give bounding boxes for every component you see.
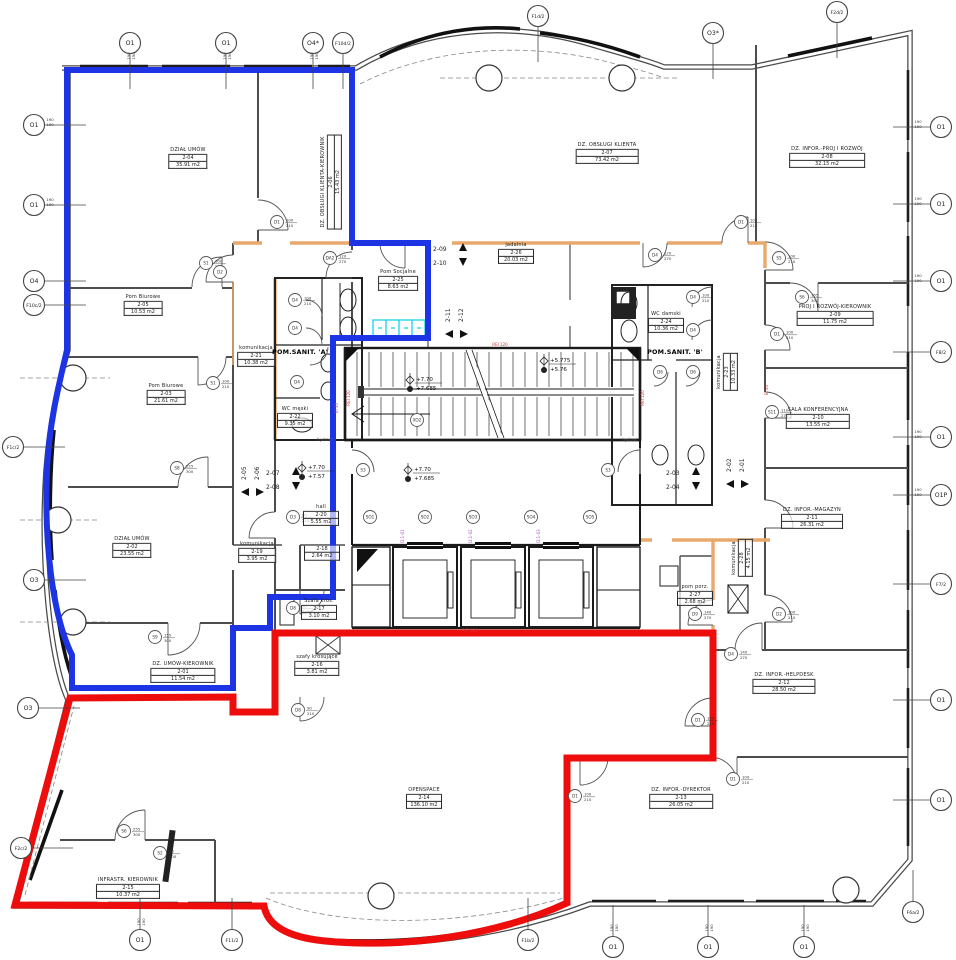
door-tag: D6: [654, 366, 667, 379]
door-tag: SO1: [364, 511, 377, 524]
svg-text:90: 90: [302, 513, 307, 518]
svg-text:190: 190: [614, 924, 619, 932]
svg-text:D2: D2: [217, 270, 223, 275]
svg-text:XO2: XO2: [413, 418, 422, 423]
grid-marker: O1: [216, 33, 237, 90]
window-dimension: 190190: [46, 117, 54, 127]
svg-text:+7.685: +7.685: [416, 386, 437, 392]
grid-marker: O3*: [703, 23, 724, 80]
svg-text:O1: O1: [126, 40, 135, 47]
misc-annotation: REI 120: [462, 628, 478, 633]
svg-text:D1: D1: [695, 718, 701, 723]
grid-marker: O4*: [303, 33, 324, 90]
direction-marker: 2-072-08: [266, 467, 300, 491]
svg-text:S3: S3: [360, 468, 366, 473]
svg-text:100: 100: [742, 775, 750, 780]
grid-marker: O1: [893, 690, 952, 711]
svg-text:S1: S1: [203, 261, 209, 266]
svg-text:+7.70: +7.70: [308, 465, 325, 471]
svg-text:2-11: 2-11: [445, 308, 452, 322]
svg-text:O1: O1: [937, 124, 946, 131]
svg-text:S9: S9: [152, 635, 158, 640]
svg-text:100: 100: [750, 218, 758, 223]
svg-text:+7.70: +7.70: [414, 467, 431, 473]
door-tag: S5100210: [773, 252, 800, 265]
svg-text:D4: D4: [690, 295, 696, 300]
misc-annotation: D.1-02: [468, 529, 473, 543]
grid-marker: F10c/2: [24, 295, 87, 316]
grid-marker: O1: [24, 195, 87, 216]
svg-text:155: 155: [164, 633, 172, 638]
svg-text:190: 190: [141, 918, 146, 926]
zone-outline-blue: [46, 70, 428, 688]
door-tag: XO2: [411, 414, 424, 427]
svg-text:2-06: 2-06: [254, 466, 261, 480]
svg-text:D4: D4: [292, 326, 298, 331]
svg-text:210: 210: [702, 298, 710, 303]
direction-marker: 2-032-04: [666, 467, 700, 491]
door-tag: D1100210: [271, 216, 298, 229]
svg-text:110: 110: [781, 408, 789, 413]
window-dimension: 190190: [309, 52, 319, 60]
misc-annotation: EI 30: [764, 385, 769, 396]
door-tag: SO5: [584, 511, 597, 524]
svg-text:2-08: 2-08: [266, 484, 280, 491]
door-tag: D4100210: [687, 291, 714, 304]
window-dimension: 190190: [914, 429, 922, 439]
door-tag: D2100210: [773, 608, 800, 621]
svg-text:100: 100: [286, 218, 294, 223]
svg-text:S6: S6: [799, 295, 805, 300]
grid-marker: O1P: [893, 485, 952, 506]
svg-text:O1: O1: [800, 944, 809, 951]
svg-text:+5.775: +5.775: [550, 358, 571, 364]
svg-text:O1: O1: [937, 434, 946, 441]
svg-text:O1: O1: [704, 944, 713, 951]
svg-text:100: 100: [702, 293, 710, 298]
svg-text:O1: O1: [136, 937, 145, 944]
svg-text:190: 190: [46, 202, 54, 207]
door-tag: D1100210: [692, 714, 719, 727]
svg-text:+7.70: +7.70: [416, 377, 433, 383]
svg-text:155: 155: [811, 293, 819, 298]
door-tag: D4140270: [725, 648, 752, 661]
svg-text:120: 120: [664, 251, 672, 256]
level-marker: +5.775+5.76: [540, 354, 576, 373]
svg-text:O1: O1: [937, 697, 946, 704]
svg-text:D8: D8: [295, 708, 301, 713]
svg-text:O3*: O3*: [707, 30, 719, 37]
floor-plan-drawing: O1O1O4*F10d/2F1d/2O3*F2d/2O1O1O4F10c/2F1…: [0, 0, 956, 960]
svg-text:S1: S1: [210, 381, 216, 386]
svg-text:O3: O3: [24, 705, 33, 712]
svg-text:O1: O1: [937, 797, 946, 804]
svg-text:F6a/2: F6a/2: [907, 910, 920, 916]
svg-text:190: 190: [914, 124, 922, 129]
grid-marker: F7/2: [893, 574, 952, 595]
window-dimension: 190190: [800, 924, 810, 932]
window-dimension: 190190: [914, 273, 922, 283]
svg-text:300: 300: [133, 832, 141, 837]
svg-text:DA2: DA2: [326, 256, 335, 261]
svg-text:100: 100: [707, 716, 715, 721]
direction-marker: 2-052-06: [241, 466, 264, 496]
svg-text:140: 140: [740, 650, 748, 655]
door-tag: D9140270: [689, 608, 716, 621]
svg-text:210: 210: [286, 223, 294, 228]
door-tag: D390210: [287, 511, 314, 524]
grid-marker: O1: [893, 194, 952, 215]
svg-text:210: 210: [307, 711, 315, 716]
svg-text:D1: D1: [572, 794, 578, 799]
door-tag: S8225300: [171, 462, 198, 475]
svg-text:300: 300: [169, 854, 177, 859]
svg-text:F1b/2: F1b/2: [522, 938, 535, 944]
window-dimension: 190190: [914, 119, 922, 129]
svg-text:SO4: SO4: [527, 515, 536, 520]
svg-text:190: 190: [227, 52, 232, 60]
svg-text:SO5: SO5: [586, 515, 595, 520]
svg-text:270: 270: [704, 615, 712, 620]
svg-text:190: 190: [805, 924, 810, 932]
svg-text:F1c/2: F1c/2: [7, 445, 20, 451]
svg-text:O4*: O4*: [307, 40, 319, 47]
misc-annotation: D.1-01: [400, 529, 405, 543]
svg-text:210: 210: [707, 721, 715, 726]
svg-text:190: 190: [46, 122, 54, 127]
door-tag: DA2120270: [324, 252, 351, 265]
level-marker: +7.70+7.57: [298, 461, 334, 480]
svg-text:+7.57: +7.57: [308, 474, 325, 480]
svg-text:255: 255: [133, 827, 141, 832]
svg-text:210: 210: [584, 797, 592, 802]
svg-text:SO3: SO3: [469, 515, 478, 520]
direction-marker: 2-112-12: [445, 308, 468, 338]
svg-text:D9: D9: [692, 612, 698, 617]
grid-marker: O1: [893, 271, 952, 292]
door-tag: S6155300: [796, 291, 823, 304]
svg-text:2-07: 2-07: [266, 470, 280, 477]
door-tag: D1100210: [569, 790, 596, 803]
door-tag: S9155300: [149, 631, 176, 644]
svg-text:D1: D1: [274, 220, 280, 225]
svg-text:O1: O1: [30, 122, 39, 129]
svg-text:2-10: 2-10: [433, 260, 447, 267]
window-dimension: 190190: [136, 918, 146, 926]
svg-text:O4: O4: [30, 278, 39, 285]
svg-text:S3: S3: [605, 468, 611, 473]
door-tag: D6: [687, 366, 700, 379]
window-dimension: 190190: [609, 924, 619, 932]
svg-text:S2: S2: [157, 851, 163, 856]
svg-text:O1: O1: [609, 944, 618, 951]
svg-text:190: 190: [709, 924, 714, 932]
window-segments: [28, 66, 908, 903]
exterior-walls: [16, 28, 910, 944]
grid-marker: O1: [893, 427, 952, 448]
svg-text:+5.76: +5.76: [550, 367, 567, 373]
direction-marker: 2-092-10: [433, 243, 467, 267]
svg-text:D3: D3: [290, 515, 296, 520]
svg-text:190: 190: [314, 52, 319, 60]
svg-text:O1: O1: [30, 202, 39, 209]
svg-text:90: 90: [302, 604, 307, 609]
svg-text:2-03: 2-03: [666, 470, 680, 477]
svg-text:210: 210: [750, 223, 758, 228]
svg-text:190: 190: [914, 492, 922, 497]
misc-annotation: EI 30: [334, 403, 339, 414]
misc-annotation: REI 120: [640, 390, 645, 406]
misc-annotation: REI 120: [492, 342, 508, 347]
svg-text:210: 210: [788, 615, 796, 620]
window-dimension: 190190: [222, 52, 232, 60]
grid-marker: O1: [893, 790, 952, 811]
svg-text:100: 100: [304, 296, 312, 301]
door-tag: D890210: [292, 704, 319, 717]
svg-text:210: 210: [302, 518, 310, 523]
misc-annotation: D.1-03: [536, 529, 541, 543]
svg-text:D4: D4: [728, 652, 734, 657]
door-tag: SO4: [525, 511, 538, 524]
misc-annotation: REI 120: [346, 390, 351, 406]
door-tag: D4: [687, 324, 700, 337]
svg-text:SO1: SO1: [366, 515, 375, 520]
door-tag: S11110270: [766, 406, 793, 419]
svg-text:O1: O1: [222, 40, 231, 47]
door-tag: S3: [357, 464, 370, 477]
svg-text:100: 100: [788, 610, 796, 615]
svg-text:D8: D8: [290, 606, 296, 611]
svg-text:D4: D4: [292, 298, 298, 303]
svg-text:120: 120: [339, 254, 347, 259]
svg-text:225: 225: [186, 464, 194, 469]
svg-text:F2d/2: F2d/2: [831, 10, 844, 16]
svg-text:S11: S11: [768, 410, 776, 415]
door-tag: D4: [289, 322, 302, 335]
svg-text:100: 100: [584, 792, 592, 797]
floor-plan-stage: O1O1O4*F10d/2F1d/2O3*F2d/2O1O1O4F10c/2F1…: [0, 0, 956, 960]
svg-text:F7/2: F7/2: [936, 582, 946, 588]
svg-text:D1: D1: [738, 220, 744, 225]
svg-text:SO2: SO2: [421, 515, 430, 520]
svg-text:+7.685: +7.685: [414, 476, 435, 482]
svg-text:270: 270: [740, 655, 748, 660]
svg-text:210: 210: [786, 335, 794, 340]
svg-text:100: 100: [786, 330, 794, 335]
door-tag: S1100210: [207, 377, 234, 390]
svg-text:O1P: O1P: [935, 492, 948, 499]
window-dimension: 190190: [914, 487, 922, 497]
door-tag: D4: [291, 376, 304, 389]
svg-text:F10c/2: F10c/2: [26, 303, 42, 309]
svg-text:140: 140: [704, 610, 712, 615]
svg-text:O1: O1: [937, 278, 946, 285]
svg-text:100: 100: [215, 259, 223, 264]
svg-text:300: 300: [164, 638, 172, 643]
window-dimension: 190190: [704, 924, 714, 932]
svg-text:D6: D6: [657, 370, 663, 375]
door-tag: D4100210: [289, 294, 316, 307]
grid-marker: F8/2: [893, 342, 952, 363]
svg-text:D4: D4: [690, 328, 696, 333]
window-dimension: 190190: [46, 197, 54, 207]
svg-text:F2c/2: F2c/2: [15, 846, 28, 852]
svg-text:D1: D1: [730, 777, 736, 782]
svg-text:90: 90: [307, 706, 312, 711]
svg-text:190: 190: [914, 434, 922, 439]
svg-text:2-05: 2-05: [241, 466, 248, 480]
svg-text:F11/2: F11/2: [226, 938, 239, 944]
svg-text:D2: D2: [776, 612, 782, 617]
door-tag: D1100210: [771, 328, 798, 341]
svg-text:2-02: 2-02: [726, 458, 733, 472]
svg-text:D1: D1: [774, 332, 780, 337]
window-dimension: 190190: [126, 52, 136, 60]
svg-text:270: 270: [664, 256, 672, 261]
sanitary-block-a: [275, 278, 362, 440]
grid-marker: O1: [24, 115, 87, 136]
svg-text:2-01: 2-01: [739, 458, 746, 472]
svg-text:190: 190: [914, 201, 922, 206]
grid-marker: O1: [120, 33, 141, 90]
door-tag: SO2: [419, 511, 432, 524]
svg-text:210: 210: [302, 609, 310, 614]
door-tag: S3: [602, 464, 615, 477]
svg-text:2-04: 2-04: [666, 484, 680, 491]
door-tag: D1100210: [727, 773, 754, 786]
grid-marker: F1c/2: [3, 437, 66, 458]
svg-text:D4: D4: [294, 380, 300, 385]
svg-text:2-09: 2-09: [433, 246, 447, 253]
svg-text:270: 270: [339, 259, 347, 264]
svg-text:190: 190: [914, 278, 922, 283]
svg-text:270: 270: [781, 413, 789, 418]
svg-text:O1: O1: [937, 201, 946, 208]
cyan-counter: [373, 320, 425, 336]
window-dimension: 190190: [914, 196, 922, 206]
svg-text:O3: O3: [30, 577, 39, 584]
door-tag: D2: [214, 266, 227, 279]
zone-outline-red: [15, 633, 713, 943]
svg-text:F10d/2: F10d/2: [335, 41, 351, 47]
direction-marker: 2-022-01: [726, 458, 749, 488]
svg-text:100: 100: [788, 254, 796, 259]
grid-marker: F6a/2: [903, 870, 924, 923]
svg-text:F1d/2: F1d/2: [532, 14, 545, 20]
svg-text:2-12: 2-12: [458, 308, 465, 322]
svg-text:100: 100: [222, 379, 230, 384]
svg-text:S6: S6: [121, 829, 127, 834]
grid-marker: O1: [893, 117, 952, 138]
svg-text:D4: D4: [652, 253, 658, 258]
closets: [162, 566, 678, 882]
svg-text:90: 90: [169, 849, 174, 854]
door-tag: S6255300: [118, 825, 145, 838]
svg-text:210: 210: [788, 259, 796, 264]
svg-text:S8: S8: [174, 466, 180, 471]
misc-annotation: hydrant: [317, 437, 333, 442]
svg-text:210: 210: [742, 780, 750, 785]
svg-text:F8/2: F8/2: [936, 350, 946, 356]
svg-text:300: 300: [186, 469, 194, 474]
svg-text:190: 190: [131, 52, 136, 60]
interior-walls: [60, 45, 908, 903]
door-tag: D4120270: [649, 249, 676, 262]
svg-text:210: 210: [222, 384, 230, 389]
svg-text:D6: D6: [690, 370, 696, 375]
svg-text:210: 210: [304, 301, 312, 306]
svg-text:S5: S5: [776, 256, 782, 261]
door-tag: SO3: [467, 511, 480, 524]
svg-text:300: 300: [811, 298, 819, 303]
level-marker: +7.70+7.685: [404, 463, 440, 482]
misc-annotation: hydrant: [622, 437, 638, 442]
